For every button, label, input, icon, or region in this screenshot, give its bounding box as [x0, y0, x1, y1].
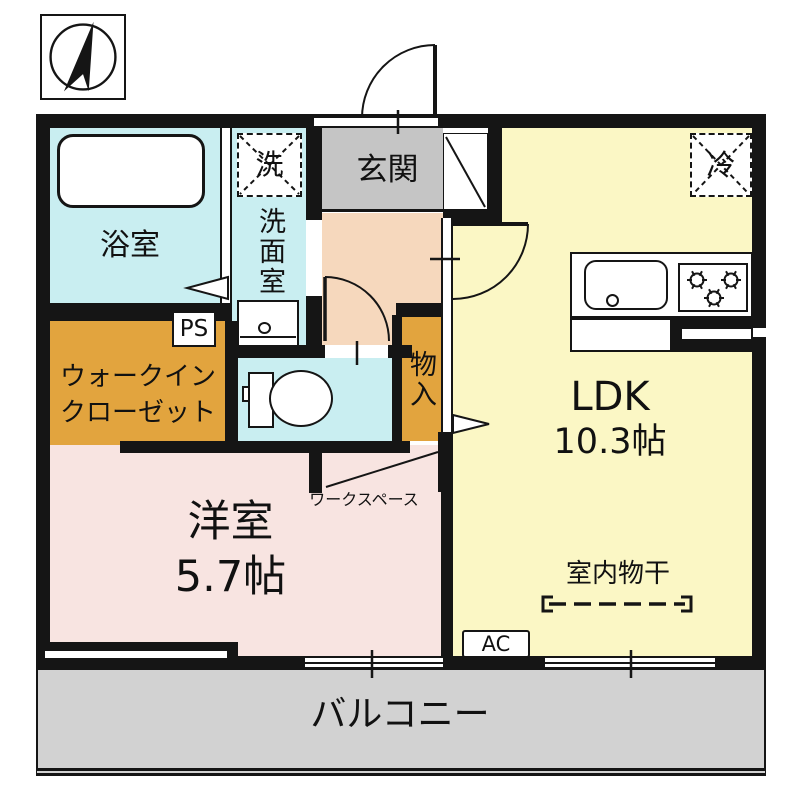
wic-label-line2: クローゼット — [48, 394, 228, 432]
entrance-door-arc — [362, 45, 435, 118]
wic-label-line1: ウォークイン — [48, 358, 228, 396]
indoor-drying-label: 室内物干 — [543, 558, 693, 590]
bathroom-door-triangle — [187, 277, 228, 299]
ac-label: AC — [462, 632, 530, 657]
ldk-door-arc — [453, 224, 528, 299]
floor-plan: 浴室 洗 洗面室 玄関 冷 LDK 10.3帖 PS ウォークイン クローゼット… — [0, 0, 800, 800]
ldk-opening-triangle — [453, 415, 489, 433]
burner-1 — [691, 274, 704, 287]
ps-label: PS — [172, 313, 216, 345]
balcony-label: バルコニー — [290, 692, 510, 738]
refrigerator-symbol-label: 冷 — [690, 147, 752, 183]
ldk-size-label: 10.3帖 — [530, 420, 690, 464]
toilet-door-arc — [325, 277, 389, 341]
bathroom-label: 浴室 — [70, 228, 190, 264]
washroom-label: 洗面室 — [251, 197, 289, 307]
burner-2 — [725, 274, 738, 287]
workspace-desk-diagonal — [326, 452, 438, 487]
storage-label: 物入 — [403, 330, 440, 430]
ldk-label: LDK — [535, 374, 685, 420]
washer-symbol-label: 洗 — [237, 147, 302, 183]
western-room-size-label: 5.7帖 — [143, 551, 318, 603]
western-room-label: 洋室 — [148, 495, 313, 549]
burner-3 — [708, 292, 721, 305]
shoe-cabinet-diagonal — [446, 137, 485, 207]
entrance-label: 玄関 — [335, 149, 440, 191]
